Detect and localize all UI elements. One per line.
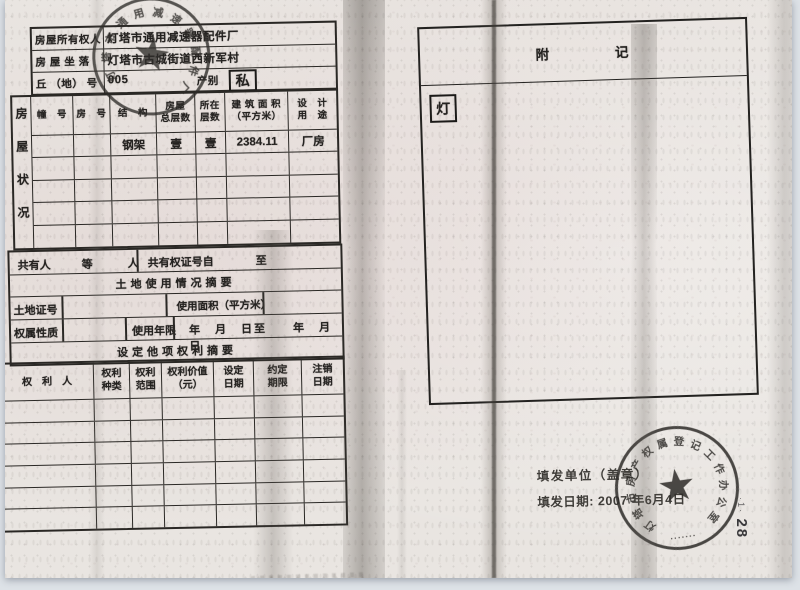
tenure-label: 权属性质: [14, 324, 58, 341]
land-area-label: 使用面积（平方米）: [176, 297, 271, 314]
empty-cell: [290, 174, 338, 196]
header-line: 注销: [312, 363, 332, 376]
header-line: 用 途: [297, 110, 327, 123]
header-line: 设定: [223, 365, 243, 378]
empty-cell: [132, 485, 164, 506]
header-line: 约定: [267, 364, 287, 377]
empty-cell: [215, 440, 255, 462]
empty-cell: [5, 400, 95, 423]
empty-cell: [257, 504, 305, 526]
header-right-value: 权利价值 （元）: [162, 360, 215, 397]
header-line: （平方米）: [231, 111, 281, 124]
empty-cell: [97, 507, 133, 528]
header-line: 日期: [224, 378, 244, 391]
empty-cell: [74, 157, 111, 179]
rights-title: 设定他项权利摘要: [117, 341, 237, 360]
empty-cell: [32, 157, 74, 179]
empty-cell: [32, 135, 74, 157]
empty-cell: [305, 503, 346, 525]
empty-cell: [304, 481, 345, 503]
header-line: 总层数: [160, 113, 190, 126]
empty-cell: [215, 418, 255, 440]
empty-cell: [289, 152, 337, 174]
header-line: 权利: [101, 367, 121, 380]
header-agreed-term: 约定 期限: [254, 358, 303, 395]
header-line: 范围: [136, 379, 156, 392]
empty-cell: [165, 506, 217, 528]
header-line: 幢 号: [37, 109, 67, 122]
co-cert-to-label: 至: [255, 252, 266, 268]
empty-cell: [74, 134, 111, 156]
office-seal-stamp: ★ ▪▪▪▪▪▪▪ 灯塔市房产权属登记工作办公室: [607, 418, 747, 558]
empty-cell: [5, 421, 95, 444]
empty-cell: [75, 179, 112, 201]
empty-cell: [216, 483, 256, 505]
empty-cell: [227, 175, 290, 198]
empty-cell: [95, 421, 131, 442]
empty-cell: [163, 441, 215, 463]
empty-cell: [158, 200, 197, 222]
mid-section: 共有人 等 人 共有权证号自 至 土地使用情况摘要 土地证号 使用面积（平方米）…: [7, 243, 344, 366]
empty-cell: [256, 482, 304, 504]
empty-cell: [5, 486, 97, 509]
category-value-box: 私: [229, 69, 257, 92]
floor-no-value: 壹: [196, 132, 226, 154]
empty-cell: [33, 202, 75, 224]
empty-cell: [164, 462, 216, 484]
empty-cell: [5, 508, 97, 531]
scan-streak: [767, 0, 792, 578]
empty-cell: [291, 219, 339, 242]
empty-cell: [217, 505, 257, 527]
empty-cell: [112, 178, 158, 200]
empty-cell: [131, 442, 163, 463]
empty-cell: [163, 419, 215, 441]
total-floors-value: 壹: [157, 132, 196, 154]
empty-cell: [33, 180, 75, 202]
stamp-arc-char: 塔: [99, 50, 113, 64]
header-right-scope: 权利 范围: [130, 361, 163, 398]
structure-value: 钢架: [111, 133, 157, 155]
empty-cell: [303, 438, 344, 460]
divider: [262, 292, 264, 314]
scanned-document-paper: 房屋所有权人 灯塔市通用减速器配件厂 房 屋 坐 落 灯塔市古城街道西新军村 丘…: [5, 0, 792, 578]
empty-cell: [304, 459, 345, 481]
divider: [173, 317, 175, 339]
header-line: 设 计: [297, 98, 327, 111]
header-line: 种类: [102, 380, 122, 393]
header-line: 权 利 人: [22, 375, 72, 389]
empty-cell: [162, 397, 214, 419]
empty-cell: [157, 155, 196, 177]
area-value: 2384.11: [226, 131, 289, 154]
empty-cell: [112, 201, 158, 223]
land-use-title: 土地使用情况摘要: [115, 273, 235, 292]
empty-cell: [131, 420, 163, 441]
header-line: 日期: [313, 376, 333, 389]
empty-cell: [132, 463, 164, 484]
housing-status-table: 房屋状况 幢 号 房 号 结 构 房屋 总层数: [10, 89, 341, 251]
term-label: 使用年限: [132, 322, 176, 339]
header-line: 建 筑 面 积: [232, 99, 282, 112]
stamp-arc-char: 办: [716, 478, 731, 493]
header-floor-no: 所在 层数: [195, 93, 226, 132]
empty-cell: [255, 439, 303, 461]
divider: [125, 318, 127, 340]
empty-cell: [159, 222, 198, 245]
empty-cell: [158, 177, 197, 199]
other-rights-table: 权 利 人 权利 种类 权利 范围 权利价值 （元） 设定 日期 约定 期限: [5, 355, 348, 532]
stamp-arc-char: 登: [672, 434, 687, 449]
housing-status-grid: 幢 号 房 号 结 构 房屋 总层数 所在 层数: [31, 91, 339, 248]
empty-cell: [96, 486, 132, 507]
header-line: 权利: [135, 366, 155, 379]
empty-cell: [214, 396, 254, 418]
designed-use-value: 厂房: [289, 130, 337, 152]
empty-cell: [130, 398, 162, 419]
annex-note-box: 灯: [429, 94, 457, 123]
empty-cell: [133, 507, 165, 528]
co-owner-suffix: 等 人: [81, 255, 150, 272]
empty-cell: [216, 461, 256, 483]
left-page-form: 房屋所有权人 灯塔市通用减速器配件厂 房 屋 坐 落 灯塔市古城街道西新军村 丘…: [5, 0, 411, 578]
star-icon: ★: [654, 458, 700, 514]
stamp-arc-char: 市: [623, 490, 640, 507]
annex-title-left: 附: [535, 43, 551, 63]
header-building-no: 幢 号: [31, 96, 74, 135]
header-room-no: 房 号: [73, 95, 111, 134]
divider: [136, 250, 138, 272]
empty-cell: [226, 153, 289, 176]
star-icon: ★: [128, 26, 175, 82]
empty-cell: [164, 484, 216, 506]
empty-cell: [111, 156, 157, 178]
empty-cell: [255, 417, 303, 439]
divider: [62, 319, 64, 341]
stamp-arc-char: 减: [150, 4, 166, 20]
empty-cell: [254, 395, 302, 417]
empty-cell: [113, 223, 159, 246]
empty-cell: [302, 394, 343, 416]
header-cancel-date: 注销 日期: [302, 358, 344, 395]
stamp-arc-char: 配: [188, 44, 203, 59]
housing-status-side-label: 房屋状况: [13, 107, 33, 239]
empty-cell: [75, 201, 112, 223]
co-cert-from-label: 共有权证号自: [147, 253, 213, 270]
empty-cell: [76, 224, 113, 247]
empty-cell: [227, 198, 290, 221]
land-cert-label: 土地证号: [13, 301, 57, 318]
header-line: 所在: [200, 100, 220, 112]
header-line: 层数: [200, 112, 220, 124]
header-right-holder: 权 利 人: [5, 363, 94, 401]
header-designed-use: 设 计 用 途: [288, 91, 337, 130]
header-area: 建 筑 面 积 （平方米）: [225, 92, 289, 131]
divider: [61, 296, 63, 318]
empty-cell: [198, 221, 228, 244]
header-line: 房 号: [76, 108, 106, 121]
stamp-arc-char: 房: [623, 473, 639, 489]
header-line: （元）: [173, 378, 203, 392]
header-right-type: 权利 种类: [94, 362, 131, 399]
empty-cell: [34, 225, 76, 248]
header-line: 权利价值: [167, 365, 207, 379]
header-set-date: 设定 日期: [214, 359, 255, 396]
empty-cell: [94, 399, 130, 420]
annex-title-right: 记: [615, 41, 631, 61]
empty-cell: [5, 465, 96, 488]
co-owner-label: 共有人: [17, 257, 50, 274]
empty-cell: [196, 154, 226, 176]
empty-cell: [197, 177, 227, 199]
empty-cell: [256, 460, 304, 482]
empty-cell: [228, 220, 291, 244]
empty-cell: [96, 464, 132, 485]
empty-cell: [303, 416, 344, 438]
empty-cell: [290, 197, 338, 219]
empty-cell: [95, 442, 131, 463]
divider: [165, 294, 167, 316]
header-line: 期限: [268, 377, 288, 390]
page-number: 28: [733, 518, 750, 539]
empty-cell: [5, 443, 96, 466]
empty-cell: [197, 199, 227, 221]
annex-header: 附 记: [419, 19, 747, 86]
annex-box: 附 记 灯: [417, 17, 759, 405]
